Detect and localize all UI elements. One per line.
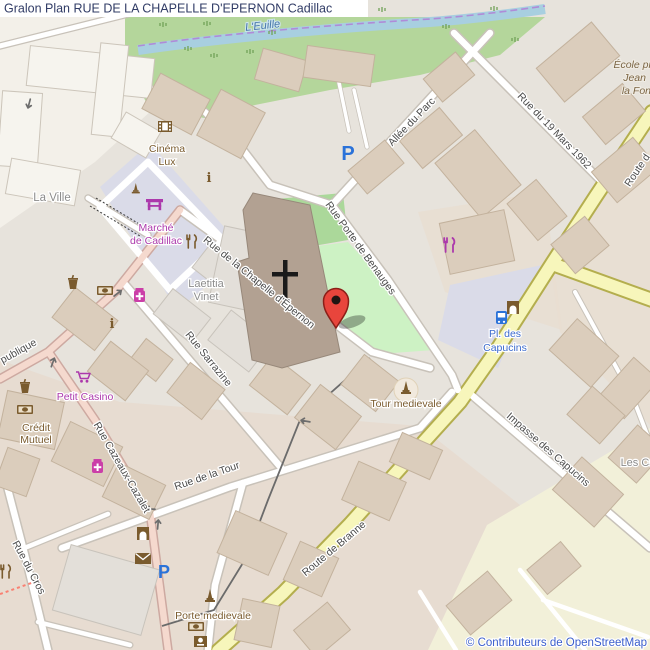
- page-title: Gralon Plan RUE DE LA CHAPELLE D'EPERNON…: [4, 2, 332, 16]
- info-icon: i: [207, 171, 212, 186]
- city-gate-icon: [137, 527, 149, 540]
- place-label-les-capucins: Les Ca: [621, 457, 650, 469]
- bank-icon: [188, 622, 204, 631]
- pharmacy-icon: [134, 288, 145, 302]
- place-label-ecole-3: la Fon: [622, 85, 650, 97]
- bank-icon: [17, 405, 33, 414]
- poi-label-tour-medievale: Tour medievale: [370, 398, 441, 410]
- pharmacy-icon: [92, 459, 103, 473]
- poi-label-cinema-2: Lux: [159, 156, 177, 168]
- place-label-laetitia: Laetitia: [188, 278, 224, 290]
- place-label-la-ville: La Ville: [33, 192, 71, 204]
- poi-label-capucins-1: Pl. des: [489, 328, 521, 340]
- post-icon: [135, 553, 151, 564]
- marker-dot: [332, 296, 341, 305]
- fountain-icon: [194, 636, 207, 647]
- parking-icon: P: [341, 143, 354, 165]
- poi-label-capucins-2: Capucins: [483, 342, 527, 354]
- poi-label-cinema-1: Cinéma: [149, 143, 185, 155]
- place-label-vinet: Vinet: [194, 291, 219, 303]
- poi-label-marche-2: de Cadillac: [130, 235, 182, 247]
- cinema-icon: [158, 121, 172, 132]
- poi-label-credit-1: Crédit: [22, 422, 50, 434]
- place-label-ecole-1: École pr: [613, 58, 650, 71]
- poi-label-marche-1: Marché: [138, 222, 173, 234]
- parking-icon: P: [158, 562, 170, 582]
- osm-attribution-link[interactable]: © Contributeurs de OpenStreetMap: [466, 637, 647, 649]
- city-gate-icon: [507, 301, 519, 314]
- bus-stop-icon: [496, 311, 507, 324]
- map-canvas[interactable]: L'Euille Allée du Parc Rue du 19 Mars 19…: [0, 0, 650, 650]
- poi-label-porte-medievale: Porte medievale: [175, 610, 251, 622]
- poi-label-petit-casino: Petit Casino: [57, 391, 114, 403]
- poi-label-credit-2: Mutuel: [20, 434, 52, 446]
- info-icon: i: [110, 317, 115, 332]
- place-label-ecole-2: Jean: [622, 72, 646, 84]
- bank-icon: [97, 286, 113, 295]
- title-bar: Gralon Plan RUE DE LA CHAPELLE D'EPERNON…: [0, 0, 368, 17]
- map-viewport[interactable]: L'Euille Allée du Parc Rue du 19 Mars 19…: [0, 0, 650, 650]
